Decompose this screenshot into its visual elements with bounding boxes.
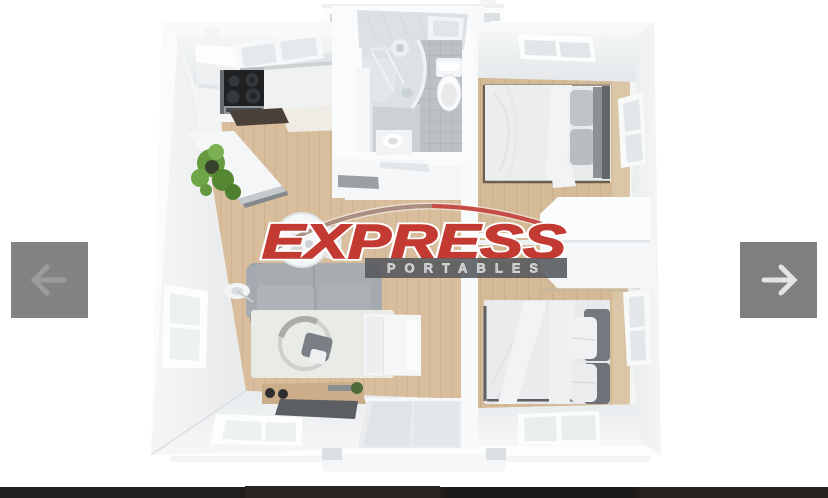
svg-text:PORTABLES: PORTABLES	[387, 261, 547, 276]
